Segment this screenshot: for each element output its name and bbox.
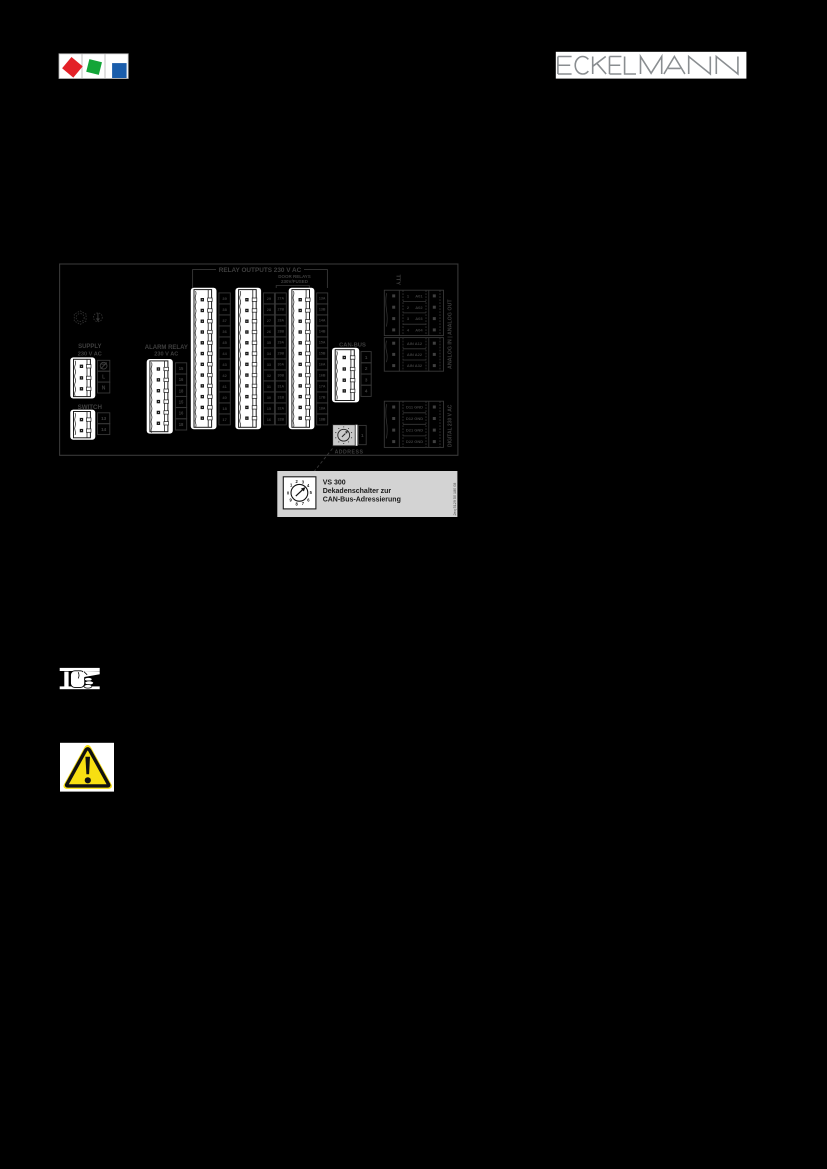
svg-text:ALARM RELAY: ALARM RELAY xyxy=(145,345,188,351)
svg-text:18B: 18B xyxy=(319,418,326,422)
svg-text:42: 42 xyxy=(222,373,227,378)
svg-text:15A: 15A xyxy=(319,341,326,345)
svg-text:L: L xyxy=(102,375,105,381)
svg-text:28: 28 xyxy=(267,307,272,312)
svg-text:2eq 5129 50 180 08: 2eq 5129 50 180 08 xyxy=(453,483,457,516)
svg-text:34: 34 xyxy=(267,351,272,356)
svg-text:4: 4 xyxy=(407,328,410,333)
svg-text:26: 26 xyxy=(267,329,272,334)
svg-text:18: 18 xyxy=(179,422,184,427)
svg-text:30A: 30A xyxy=(278,363,285,367)
svg-text:17: 17 xyxy=(222,417,226,422)
svg-text:32B: 32B xyxy=(278,418,285,422)
svg-text:2: 2 xyxy=(407,305,410,310)
svg-text:A03: A03 xyxy=(415,316,423,321)
svg-text:230V/FUSED: 230V/FUSED xyxy=(281,279,309,284)
svg-text:32A: 32A xyxy=(278,407,285,411)
svg-text:29A: 29A xyxy=(278,341,285,345)
svg-text:ADDRESS: ADDRESS xyxy=(335,449,364,455)
svg-text:A04: A04 xyxy=(415,328,423,333)
svg-text:1: 1 xyxy=(407,293,410,298)
svg-text:CAN-Bus-Adressierung: CAN-Bus-Adressierung xyxy=(323,496,401,503)
svg-text:DIGITAL 230 V AC: DIGITAL 230 V AC xyxy=(448,404,454,447)
svg-text:40: 40 xyxy=(222,395,226,400)
svg-text:38: 38 xyxy=(222,307,227,312)
svg-text:DOOR RELAYS: DOOR RELAYS xyxy=(278,274,311,279)
svg-text:16: 16 xyxy=(267,417,272,422)
svg-text:44: 44 xyxy=(222,351,227,356)
svg-text:2: 2 xyxy=(365,366,368,371)
svg-text:230 V AC: 230 V AC xyxy=(154,352,178,358)
svg-text:D21 GND: D21 GND xyxy=(406,428,423,433)
svg-text:45: 45 xyxy=(222,340,227,345)
svg-text:29B: 29B xyxy=(278,352,285,356)
svg-text:15: 15 xyxy=(267,406,272,411)
svg-text:N: N xyxy=(102,386,106,392)
svg-text:AIN A32: AIN A32 xyxy=(407,363,423,368)
svg-text:D12 GND: D12 GND xyxy=(406,416,423,421)
svg-text:16A: 16A xyxy=(319,363,326,367)
svg-text:AIN A22: AIN A22 xyxy=(407,352,423,357)
svg-text:Dekadenschalter zur: Dekadenschalter zur xyxy=(323,488,392,495)
svg-text:37: 37 xyxy=(222,318,226,323)
svg-text:31: 31 xyxy=(267,384,272,389)
svg-text:15: 15 xyxy=(179,400,184,405)
svg-text:D11 GND: D11 GND xyxy=(406,405,423,410)
svg-text:29: 29 xyxy=(267,296,272,301)
svg-text:13B: 13B xyxy=(319,308,326,312)
svg-text:39: 39 xyxy=(222,296,227,301)
svg-text:D22 GND: D22 GND xyxy=(406,439,423,444)
svg-text:13A: 13A xyxy=(319,297,326,301)
svg-text:30: 30 xyxy=(267,395,271,400)
svg-text:17A: 17A xyxy=(319,385,326,389)
svg-text:18: 18 xyxy=(222,406,227,411)
svg-text:AIN A12: AIN A12 xyxy=(407,341,423,346)
svg-text:16: 16 xyxy=(179,411,184,416)
svg-text:1: 1 xyxy=(365,355,368,360)
svg-text:35: 35 xyxy=(267,340,272,345)
svg-text:ANALOG IN | ANALOG OUT: ANALOG IN | ANALOG OUT xyxy=(448,299,454,369)
svg-text:16B: 16B xyxy=(319,374,326,378)
svg-text:14: 14 xyxy=(101,427,107,432)
svg-text:1: 1 xyxy=(361,433,364,438)
svg-text:4: 4 xyxy=(365,388,368,393)
svg-text:14A: 14A xyxy=(319,319,326,323)
svg-text:32: 32 xyxy=(267,373,272,378)
svg-text:28B: 28B xyxy=(278,330,285,334)
svg-text:28A: 28A xyxy=(278,319,285,323)
svg-text:30B: 30B xyxy=(278,374,285,378)
svg-text:31B: 31B xyxy=(278,396,285,400)
svg-text:230 V AC: 230 V AC xyxy=(78,352,102,358)
svg-text:33: 33 xyxy=(267,362,272,367)
svg-text:43: 43 xyxy=(222,362,227,367)
svg-text:31A: 31A xyxy=(278,385,285,389)
svg-text:18: 18 xyxy=(179,388,184,393)
svg-text:3: 3 xyxy=(407,316,410,321)
svg-text:SUPPLY: SUPPLY xyxy=(78,344,101,350)
svg-text:CAN-BUS: CAN-BUS xyxy=(339,343,366,349)
svg-text:15B: 15B xyxy=(319,352,326,356)
svg-text:VS 300: VS 300 xyxy=(323,479,346,486)
svg-text:27B: 27B xyxy=(278,308,285,312)
svg-text:41: 41 xyxy=(222,384,227,389)
svg-text:A01: A01 xyxy=(415,293,423,298)
svg-text:TTY: TTY xyxy=(395,275,401,286)
svg-text:17B: 17B xyxy=(319,396,326,400)
svg-text:16: 16 xyxy=(179,377,184,382)
svg-text:27A: 27A xyxy=(278,297,285,301)
svg-text:27: 27 xyxy=(267,318,271,323)
svg-text:14B: 14B xyxy=(319,330,326,334)
svg-text:3: 3 xyxy=(365,377,368,382)
svg-text:A02: A02 xyxy=(415,305,423,310)
svg-text:13: 13 xyxy=(101,416,107,421)
svg-text:36: 36 xyxy=(222,329,227,334)
svg-text:18A: 18A xyxy=(319,407,326,411)
svg-text:15: 15 xyxy=(179,366,184,371)
